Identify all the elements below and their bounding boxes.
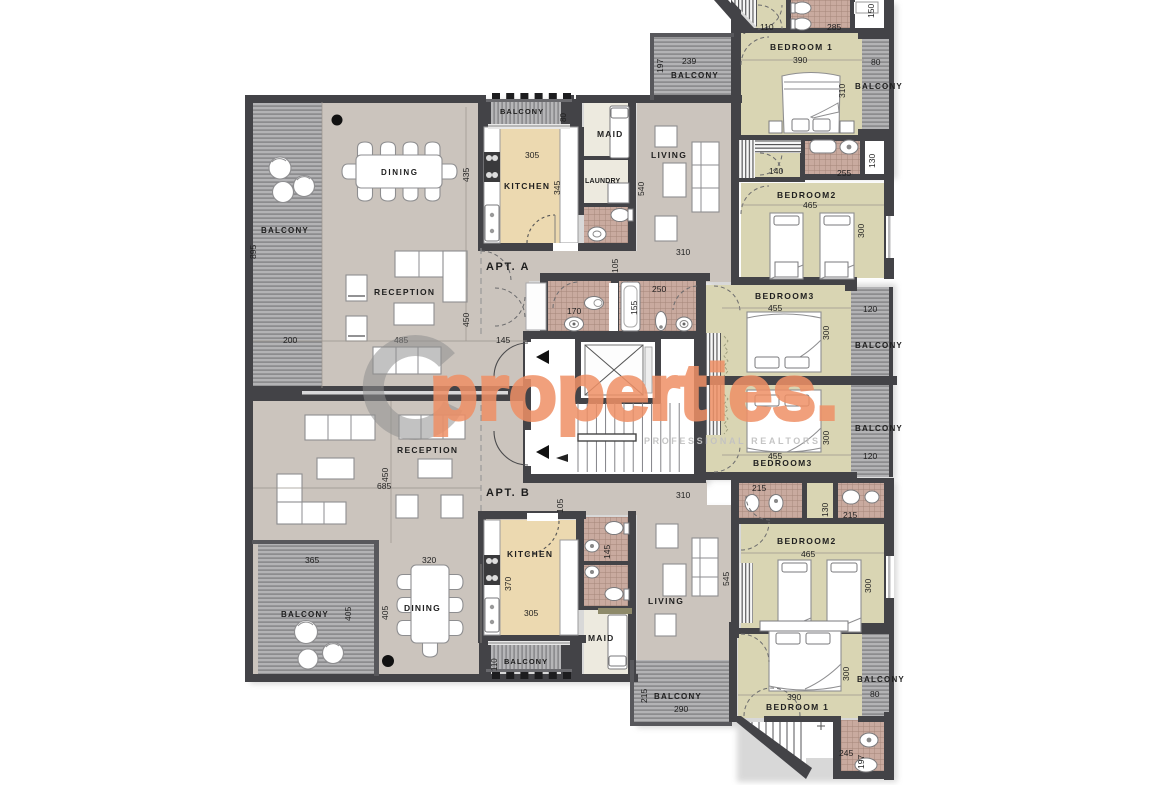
svg-text:155: 155 (629, 301, 639, 315)
svg-text:BEDROOM 1: BEDROOM 1 (770, 42, 833, 52)
svg-text:250: 250 (652, 284, 666, 294)
svg-text:120: 120 (863, 451, 877, 461)
svg-text:105: 105 (610, 259, 620, 273)
svg-text:RECEPTION: RECEPTION (374, 287, 435, 297)
svg-text:300: 300 (841, 667, 851, 681)
svg-text:305: 305 (525, 150, 539, 160)
svg-text:DINING: DINING (381, 168, 419, 177)
svg-text:MAID: MAID (597, 129, 624, 139)
svg-text:255: 255 (837, 168, 851, 178)
svg-text:455: 455 (768, 451, 782, 461)
svg-text:345: 345 (552, 181, 562, 195)
svg-text:310: 310 (676, 247, 690, 257)
svg-text:450: 450 (461, 313, 471, 327)
svg-text:145: 145 (602, 545, 612, 559)
svg-text:105: 105 (555, 499, 565, 513)
svg-text:285: 285 (827, 22, 841, 32)
svg-text:KITCHEN: KITCHEN (507, 549, 553, 559)
svg-text:BALCONY: BALCONY (261, 226, 309, 235)
svg-text:310: 310 (837, 84, 847, 98)
svg-text:130: 130 (867, 154, 877, 168)
svg-text:239: 239 (682, 56, 696, 66)
svg-text:545: 545 (721, 572, 731, 586)
svg-text:150: 150 (866, 4, 876, 18)
svg-text:435: 435 (461, 168, 471, 182)
svg-text:BEDROOM3: BEDROOM3 (753, 458, 813, 468)
svg-text:300: 300 (856, 224, 866, 238)
svg-text:450: 450 (380, 468, 390, 482)
svg-text:215: 215 (639, 689, 649, 703)
svg-text:895: 895 (248, 245, 258, 259)
svg-text:BALCONY: BALCONY (855, 82, 903, 91)
svg-text:DINING: DINING (404, 603, 441, 613)
svg-text:BALCONY: BALCONY (671, 71, 719, 80)
svg-text:290: 290 (674, 704, 688, 714)
svg-text:BALCONY: BALCONY (855, 341, 903, 350)
svg-text:BALCONY: BALCONY (654, 692, 702, 701)
svg-text:APT. A: APT. A (486, 261, 530, 273)
svg-text:80: 80 (871, 57, 881, 67)
svg-text:405: 405 (380, 606, 390, 620)
svg-text:200: 200 (283, 335, 297, 345)
svg-text:197: 197 (655, 59, 665, 73)
svg-text:110: 110 (760, 22, 774, 32)
svg-text:BALCONY: BALCONY (281, 610, 329, 619)
svg-text:245: 245 (839, 748, 853, 758)
svg-text:properties.: properties. (430, 348, 839, 436)
svg-text:80: 80 (870, 689, 880, 699)
svg-text:310: 310 (676, 490, 690, 500)
svg-text:RECEPTION: RECEPTION (397, 445, 458, 455)
svg-text:BALCONY: BALCONY (504, 657, 548, 666)
svg-text:MAID: MAID (588, 633, 615, 643)
svg-text:197: 197 (856, 755, 866, 769)
svg-text:685: 685 (377, 481, 391, 491)
svg-text:365: 365 (305, 555, 319, 565)
svg-text:320: 320 (422, 555, 436, 565)
svg-text:130: 130 (820, 503, 830, 517)
svg-text:465: 465 (801, 549, 815, 559)
svg-text:300: 300 (821, 326, 831, 340)
svg-text:KITCHEN: KITCHEN (504, 181, 550, 191)
svg-text:370: 370 (503, 577, 513, 591)
svg-text:120: 120 (863, 304, 877, 314)
svg-text:140: 140 (769, 166, 783, 176)
svg-text:LAUNDRY: LAUNDRY (585, 178, 620, 185)
svg-text:465: 465 (803, 200, 817, 210)
svg-text:455: 455 (768, 303, 782, 313)
svg-text:APT. B: APT. B (486, 487, 530, 499)
svg-text:BEDROOM2: BEDROOM2 (777, 536, 837, 546)
svg-text:BEDROOM2: BEDROOM2 (777, 190, 837, 200)
svg-text:LIVING: LIVING (651, 150, 687, 160)
svg-text:215: 215 (752, 483, 766, 493)
svg-text:215: 215 (843, 510, 857, 520)
svg-text:110: 110 (490, 658, 499, 671)
svg-text:BEDROOM 1: BEDROOM 1 (766, 702, 829, 712)
svg-text:BALCONY: BALCONY (857, 675, 905, 684)
svg-text:540: 540 (636, 182, 646, 196)
svg-text:BALCONY: BALCONY (855, 424, 903, 433)
svg-text:390: 390 (787, 692, 801, 702)
svg-text:LIVING: LIVING (648, 596, 684, 606)
svg-text:300: 300 (863, 579, 873, 593)
svg-text:390: 390 (793, 55, 807, 65)
svg-text:405: 405 (343, 607, 353, 621)
svg-text:145: 145 (496, 335, 510, 345)
svg-text:PROFESSIONAL REALTORS: PROFESSIONAL REALTORS (644, 436, 821, 446)
svg-text:BEDROOM3: BEDROOM3 (755, 291, 815, 301)
svg-text:170: 170 (567, 306, 581, 316)
svg-text:BALCONY: BALCONY (500, 107, 544, 116)
svg-text:305: 305 (524, 608, 538, 618)
svg-text:80: 80 (559, 113, 568, 122)
